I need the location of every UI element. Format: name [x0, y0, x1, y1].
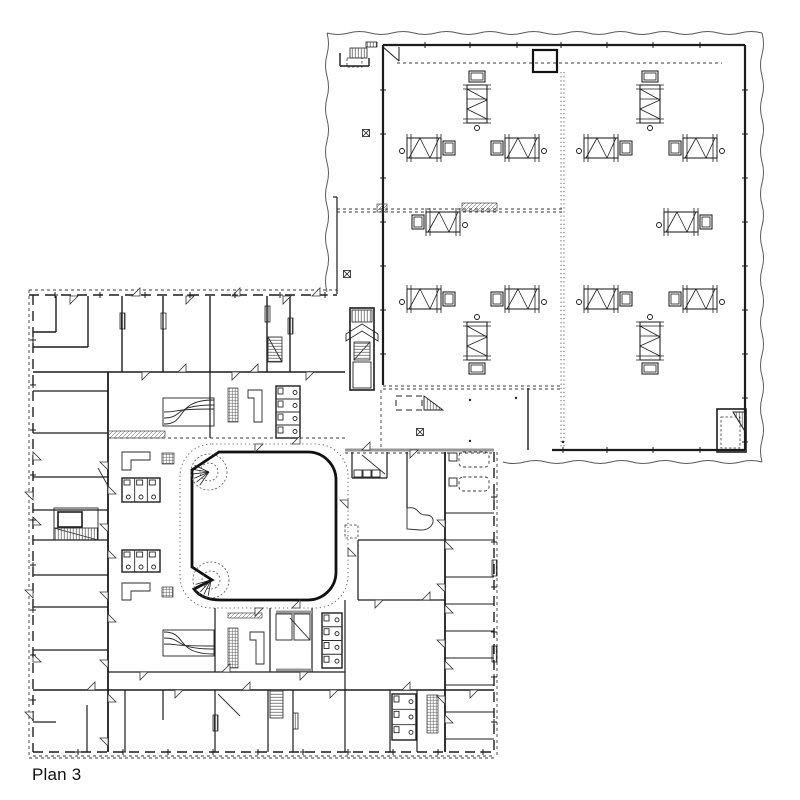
loom-symbol	[669, 285, 725, 313]
workshop-looms	[400, 71, 725, 374]
grid-ticks	[30, 42, 748, 755]
loom-symbol	[636, 71, 664, 131]
walls	[33, 45, 745, 752]
rooms-and-equipment	[54, 42, 746, 733]
loom-symbol	[657, 208, 713, 236]
loom-symbol	[577, 285, 633, 313]
site-boundary-wavy	[326, 32, 764, 464]
loom-symbol	[412, 208, 468, 236]
plan-sheet: Plan 3	[0, 0, 800, 800]
thin-lines	[54, 337, 746, 716]
loom-symbol	[463, 71, 491, 131]
loom-symbol	[636, 315, 664, 375]
boundary-dashed	[29, 295, 494, 752]
loom-symbol	[491, 285, 547, 313]
floor-plan-drawing	[0, 0, 800, 800]
loom-symbol	[400, 134, 456, 162]
door-symbols	[25, 288, 478, 746]
courtyard-and-fixtures	[122, 324, 746, 664]
sanitary-clusters	[122, 386, 416, 740]
spiral-stairs	[191, 454, 229, 598]
hall-divider-dotted	[561, 72, 564, 450]
loom-symbol	[669, 134, 725, 162]
guide-lines-fine	[29, 63, 722, 758]
loom-symbol	[400, 285, 456, 313]
loom-symbol	[577, 134, 633, 162]
survey-marks	[344, 130, 565, 444]
loom-symbol	[463, 315, 491, 375]
plan-title: Plan 3	[32, 765, 81, 785]
loom-symbol	[491, 134, 547, 162]
gray-walls	[276, 450, 494, 670]
